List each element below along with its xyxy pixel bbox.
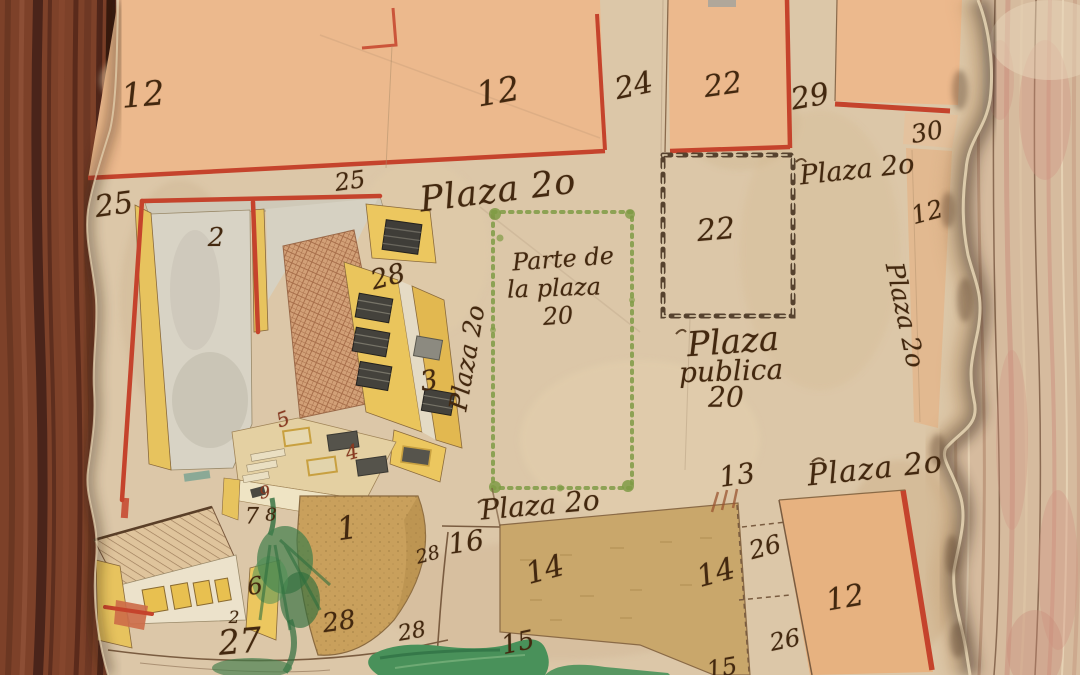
window xyxy=(382,220,422,255)
parte-de-la-plaza-line3: 20 xyxy=(542,301,574,331)
parcel-15-bottom-label: 15 xyxy=(705,652,740,675)
label-7-stairs: 7 xyxy=(245,505,259,530)
plaza-publica-line3: 20 xyxy=(708,381,744,414)
parcel-12-top-center-label: 12 xyxy=(473,69,523,116)
parcel-12-bottom-right-label: 12 xyxy=(823,577,867,618)
label-28-street-a: 28 xyxy=(321,605,358,639)
map-photo: 12 12 24 22 29 30 Plaza 2o 12 Plaza 2o 2… xyxy=(0,0,1080,675)
parcel-27-label: 27 xyxy=(217,620,264,664)
parcel-22-chained-label: 22 xyxy=(695,211,736,249)
label-8-stairs: 8 xyxy=(265,505,276,526)
label-28-street-b: 28 xyxy=(396,617,428,646)
parcel-16-label: 16 xyxy=(446,523,486,561)
parcel-25-left-label: 25 xyxy=(93,185,136,225)
parcel-25-top-label: 25 xyxy=(333,165,367,197)
parte-de-la-plaza-line2: la plaza xyxy=(507,272,602,303)
parcel-22-top-label: 22 xyxy=(702,65,745,105)
parcel-12-top-shape xyxy=(88,0,605,179)
parcel-13-label: 13 xyxy=(717,456,757,494)
parcel-29-label: 29 xyxy=(788,76,832,117)
parcel-30-label: 30 xyxy=(909,115,945,149)
parcel-12-top-left-label: 12 xyxy=(120,73,167,117)
parcel-top-right-shape xyxy=(835,0,962,105)
parcel-2-courtyard-label: 2 xyxy=(208,223,225,253)
